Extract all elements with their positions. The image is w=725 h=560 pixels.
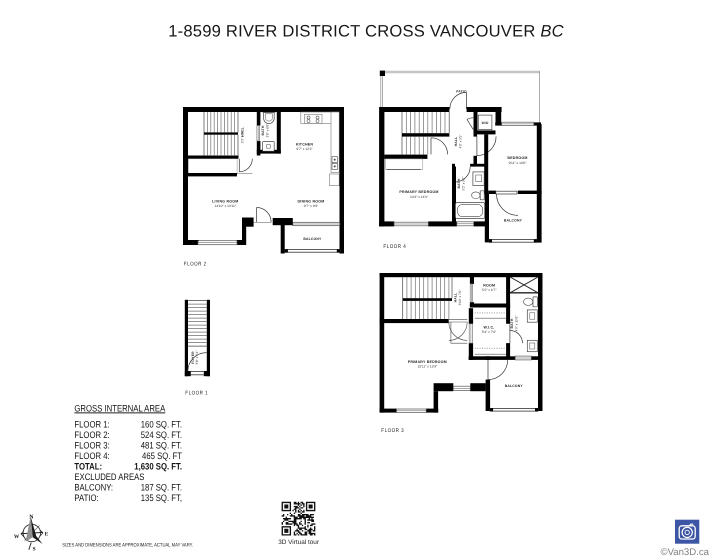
svg-text:BEDROOM: BEDROOM: [507, 156, 527, 160]
svg-text:160 SQ. FT.: 160 SQ. FT.: [141, 418, 182, 429]
svg-text:HALL: HALL: [453, 293, 457, 303]
svg-text:3'6" x 4'4": 3'6" x 4'4": [195, 351, 199, 365]
svg-text:465 SQ. FT: 465 SQ. FT: [142, 450, 182, 461]
svg-text:HALL: HALL: [454, 137, 458, 147]
svg-text:9'11" x 10'6": 9'11" x 10'6": [509, 161, 528, 165]
svg-text:15'11" x 13'9": 15'11" x 13'9": [417, 364, 437, 368]
svg-text:9'7" x 12'2": 9'7" x 12'2": [296, 147, 313, 151]
svg-text:BALCONY: BALCONY: [505, 384, 524, 388]
svg-text:BALCONY:: BALCONY:: [74, 481, 113, 492]
svg-text:5'2" x 9'2": 5'2" x 9'2": [461, 177, 465, 191]
svg-text:1,630 SQ. FT.: 1,630 SQ. FT.: [134, 460, 182, 471]
svg-text:PRIMARY BEDROOM: PRIMARY BEDROOM: [399, 190, 438, 194]
svg-text:FLOOR 3:: FLOOR 3:: [74, 439, 109, 450]
svg-text:1-8599 RIVER DISTRICT CROSS VA: 1-8599 RIVER DISTRICT CROSS VANCOUVER BC: [168, 22, 564, 41]
svg-text:4'9" x 12'6": 4'9" x 12'6": [514, 316, 518, 332]
svg-text:3'3" x 7'3": 3'3" x 7'3": [241, 129, 245, 143]
svg-text:LIVING ROOM: LIVING ROOM: [212, 199, 238, 203]
svg-text:9'7" x 9'9": 9'7" x 9'9": [304, 204, 319, 208]
svg-text:FLOOR 2: FLOOR 2: [184, 262, 207, 268]
svg-text:S: S: [33, 547, 36, 553]
svg-text:W.I.C.: W.I.C.: [484, 325, 495, 329]
svg-text:3'6" x 6'6": 3'6" x 6'6": [265, 124, 269, 138]
svg-text:KITCHEN: KITCHEN: [296, 143, 314, 147]
svg-text:4'0" x 9'5": 4'0" x 9'5": [458, 135, 462, 149]
svg-text:10'3" x 14'3": 10'3" x 14'3": [410, 195, 429, 199]
svg-text:FLOOR 2:: FLOOR 2:: [74, 429, 109, 440]
svg-text:524 SQ. FT.: 524 SQ. FT.: [141, 429, 182, 440]
svg-text:DINING ROOM: DINING ROOM: [298, 199, 325, 203]
svg-text:FLOOR 1:: FLOOR 1:: [74, 418, 109, 429]
svg-text:5'2" x 6'7": 5'2" x 6'7": [482, 288, 497, 292]
svg-text:W: W: [14, 534, 20, 540]
svg-text:N: N: [29, 514, 34, 520]
svg-text:EXCLUDED AREAS: EXCLUDED AREAS: [74, 471, 144, 482]
svg-text:PRIMARY BEDROOM: PRIMARY BEDROOM: [408, 360, 447, 364]
svg-text:TOTAL:: TOTAL:: [74, 460, 102, 471]
svg-text:481 SQ. FT.: 481 SQ. FT.: [141, 439, 182, 450]
svg-text:W/D: W/D: [482, 121, 489, 125]
svg-text:FLOOR 3: FLOOR 3: [381, 428, 404, 434]
svg-text:3D Virtual tour: 3D Virtual tour: [278, 539, 320, 546]
svg-text:ROOM: ROOM: [483, 284, 495, 288]
svg-text:3'10" x 7'0": 3'10" x 7'0": [458, 290, 462, 306]
svg-text:BALCONY: BALCONY: [504, 218, 523, 222]
svg-text:BATH: BATH: [457, 178, 461, 188]
svg-text:©Van3D.ca: ©Van3D.ca: [661, 547, 710, 558]
svg-text:187 SQ. FT.: 187 SQ. FT.: [141, 481, 182, 492]
svg-text:BALCONY: BALCONY: [303, 237, 322, 241]
svg-text:GROSS INTERNAL AREA: GROSS INTERNAL AREA: [74, 402, 165, 413]
svg-text:E: E: [45, 531, 49, 537]
svg-text:PATIO:: PATIO:: [74, 492, 98, 503]
svg-text:FLOOR 1: FLOOR 1: [185, 391, 208, 397]
svg-text:FLOOR 4: FLOOR 4: [383, 244, 406, 250]
svg-text:FLOOR 4:: FLOOR 4:: [74, 450, 109, 461]
svg-text:SIZES AND DIMENSIONS ARE APPRO: SIZES AND DIMENSIONS ARE APPROXIMATE, AC…: [62, 542, 193, 548]
svg-text:14'10" x 13'11": 14'10" x 13'11": [215, 204, 237, 208]
svg-text:BATH: BATH: [510, 318, 514, 328]
svg-text:135 SQ. FT,: 135 SQ. FT,: [141, 492, 182, 503]
svg-text:5'4" x 7'6": 5'4" x 7'6": [482, 330, 497, 334]
